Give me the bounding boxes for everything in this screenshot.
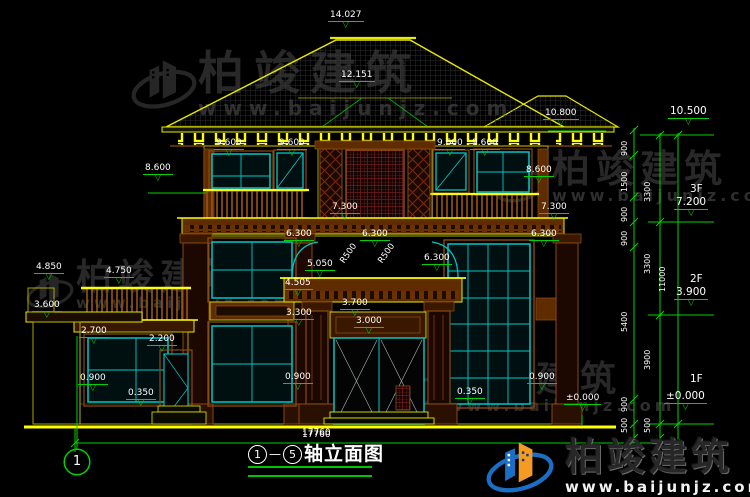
window-3f-left bbox=[212, 154, 270, 188]
third-floor-right-wing bbox=[426, 146, 548, 218]
door-side-vent bbox=[396, 386, 410, 410]
third-floor-left-wing bbox=[203, 146, 324, 218]
left-wing bbox=[26, 288, 206, 424]
main-hip-roof bbox=[166, 38, 564, 127]
cad-canvas: 柏竣建筑 www.baijunjz.com 柏竣建筑 www.baijunjz.… bbox=[0, 0, 750, 497]
garage-window bbox=[88, 338, 168, 402]
title-text: 轴立面图 bbox=[304, 444, 384, 464]
brand-url: www.baijunjz.com bbox=[565, 478, 750, 496]
brand-logo bbox=[478, 434, 562, 496]
brand-watermark: 柏竣建筑 www.baijunjz.com bbox=[565, 438, 750, 496]
eave-brackets-right bbox=[556, 133, 608, 145]
door-header bbox=[330, 312, 426, 338]
drawing-title: 1 — 5 轴立面图 bbox=[248, 444, 384, 464]
pilaster-right-corner bbox=[552, 234, 582, 424]
window-3f-right bbox=[477, 152, 529, 192]
window-1f-left bbox=[212, 326, 292, 402]
balcony-railing-3f-left bbox=[203, 190, 309, 218]
title-underline bbox=[248, 466, 372, 477]
left-bay bbox=[208, 238, 296, 406]
window-3f-left-casement bbox=[277, 153, 303, 188]
spandrel-panel-left bbox=[210, 302, 294, 320]
side-door-steps bbox=[152, 406, 206, 424]
axis-bubble-1: 1 bbox=[64, 449, 90, 475]
spandrel-panel-right bbox=[536, 298, 556, 320]
brand-name: 柏竣建筑 bbox=[565, 438, 750, 476]
main-cornice bbox=[177, 218, 568, 236]
axis-bubble-to: 5 bbox=[283, 445, 302, 464]
right-bay bbox=[444, 240, 556, 408]
window-3f-right-casement bbox=[436, 153, 466, 190]
chain-ticks bbox=[630, 126, 682, 442]
corner-pilaster bbox=[538, 149, 548, 218]
elevation-drawing bbox=[0, 0, 750, 497]
balcony-railing-3f-right bbox=[429, 194, 539, 218]
window-2f-left bbox=[212, 242, 292, 298]
portico-entablature bbox=[280, 278, 466, 302]
axis-bubble-from: 1 bbox=[248, 445, 267, 464]
stair-window bbox=[448, 244, 530, 404]
title-dash: — bbox=[269, 446, 281, 463]
annex-wall bbox=[33, 322, 80, 424]
entrance-steps bbox=[324, 412, 434, 424]
entrance-door bbox=[334, 338, 424, 424]
